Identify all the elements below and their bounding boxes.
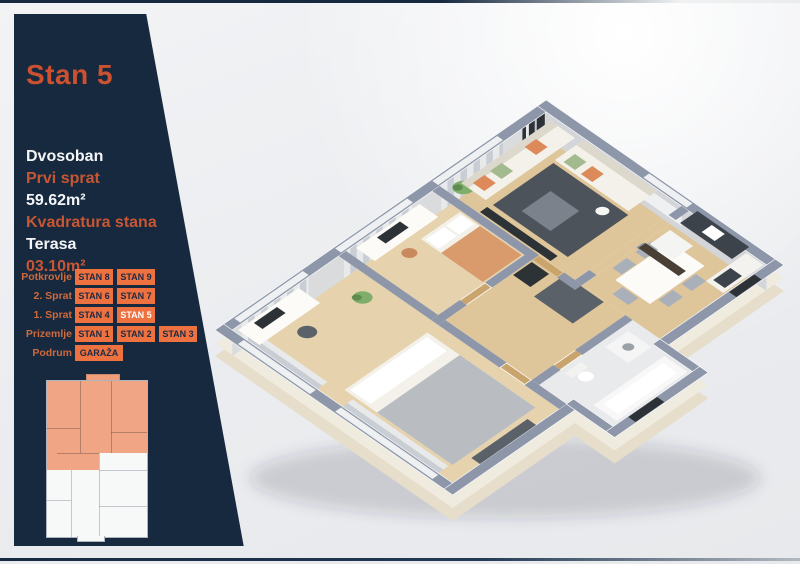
floor-row-prizemlje: Prizemlje STAN 1 STAN 2 STAN 3 <box>20 325 201 342</box>
unit-button-stan-5[interactable]: STAN 5 <box>117 307 155 323</box>
thumbnail-selected-unit-lower <box>47 453 99 470</box>
unit-button-stan-3[interactable]: STAN 3 <box>159 326 197 342</box>
detail-area: 59.62m² <box>26 190 157 211</box>
unit-button-stan-9[interactable]: STAN 9 <box>117 269 155 285</box>
unit-button-stan-4[interactable]: STAN 4 <box>75 307 113 323</box>
floor-label: Podrum <box>20 347 72 359</box>
floor-row-1-sprat: 1. Sprat STAN 4 STAN 5 <box>20 306 201 323</box>
page-background: Stan 5 Dvosoban Prvi sprat 59.62m² Kvadr… <box>0 0 800 564</box>
floor-label: 1. Sprat <box>20 309 72 321</box>
unit-button-stan-6[interactable]: STAN 6 <box>75 288 113 304</box>
floor-label: Potkrovlje <box>20 271 72 283</box>
detail-floor: Prvi sprat <box>26 168 157 189</box>
floor-plan-thumbnail <box>46 380 148 538</box>
unit-button-stan-7[interactable]: STAN 7 <box>117 288 155 304</box>
floor-row-podrum: Podrum GARAŽA <box>20 344 201 361</box>
floor-label: 2. Sprat <box>20 290 72 302</box>
thumbnail-entry-notch <box>77 536 106 542</box>
floor-selector: Potkrovlje STAN 8 STAN 9 2. Sprat STAN 6… <box>20 268 201 361</box>
thumbnail-body <box>46 380 148 538</box>
page-title: Stan 5 <box>26 59 113 91</box>
unit-button-stan-8[interactable]: STAN 8 <box>75 269 113 285</box>
floor-row-2-sprat: 2. Sprat STAN 6 STAN 7 <box>20 287 201 304</box>
detail-area-label: Kvadratura stana <box>26 212 157 233</box>
floor-row-potkrovlje: Potkrovlje STAN 8 STAN 9 <box>20 268 201 285</box>
unit-button-garaza[interactable]: GARAŽA <box>75 345 123 361</box>
unit-button-stan-2[interactable]: STAN 2 <box>117 326 155 342</box>
detail-type: Dvosoban <box>26 146 157 167</box>
apartment-details: Dvosoban Prvi sprat 59.62m² Kvadratura s… <box>26 146 157 277</box>
floor-label: Prizemlje <box>20 328 72 340</box>
thumbnail-selected-unit <box>47 381 147 453</box>
detail-terrace-label: Terasa <box>26 234 157 255</box>
unit-button-stan-1[interactable]: STAN 1 <box>75 326 113 342</box>
